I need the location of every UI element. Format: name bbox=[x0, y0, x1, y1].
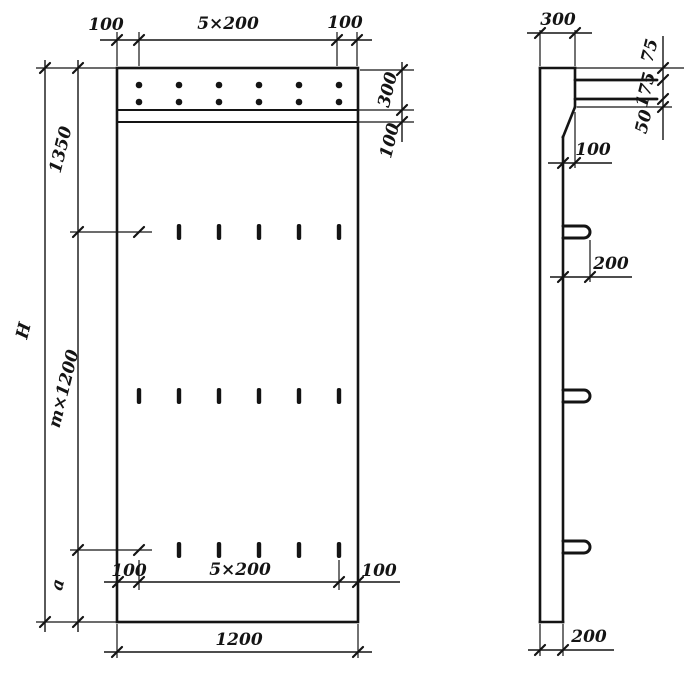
side-top-dimension: 300 bbox=[527, 10, 592, 66]
panel-outline bbox=[117, 68, 358, 622]
dim-side-offset-upper: 75 bbox=[638, 37, 663, 65]
front-right-dimensions: 300 100 bbox=[358, 62, 414, 160]
dim-side-offset-middle: 175 bbox=[632, 70, 660, 109]
front-lower-dimension: 100 5×200 100 bbox=[104, 560, 400, 590]
front-left-dimensions: H 1350 m×1200 a bbox=[12, 60, 152, 632]
panel-technical-drawing: 100 5×200 100 H 1350 m×1200 a bbox=[0, 0, 700, 700]
dim-lower-right-margin: 100 bbox=[361, 561, 397, 581]
dim-height-overall: H bbox=[12, 320, 36, 342]
side-view: 300 75 175 50 100 bbox=[527, 10, 684, 656]
dim-width-overall: 1200 bbox=[215, 630, 262, 650]
side-hooks bbox=[563, 226, 590, 553]
dim-band-height: 300 bbox=[374, 70, 402, 109]
side-bottom-dimension: 200 bbox=[528, 624, 614, 656]
hole-slots bbox=[137, 224, 341, 558]
drawing-sheet: 100 5×200 100 H 1350 m×1200 a bbox=[0, 0, 700, 700]
side-right-dimensions: 75 175 50 bbox=[575, 36, 684, 140]
dim-top-left-margin: 100 bbox=[88, 15, 124, 35]
dim-side-offset-lower: 50 bbox=[632, 108, 657, 136]
front-view: 100 5×200 100 H 1350 m×1200 a bbox=[12, 13, 414, 658]
dim-side-bend-offset: 100 bbox=[575, 140, 611, 160]
dim-lower-left-margin: 100 bbox=[111, 561, 147, 581]
anchor-dots bbox=[136, 82, 343, 106]
dim-lower-spacing: 5×200 bbox=[209, 560, 271, 580]
dim-height-upper: 1350 bbox=[46, 124, 77, 175]
front-width-dimension: 1200 bbox=[104, 624, 372, 658]
side-profile-outline bbox=[540, 68, 575, 622]
front-top-dimension: 100 5×200 100 bbox=[88, 13, 372, 66]
side-bend-dimension: 100 bbox=[548, 112, 612, 168]
dim-side-bottom-thickness: 200 bbox=[570, 627, 607, 647]
dim-top-right-margin: 100 bbox=[327, 13, 363, 33]
dim-top-spacing: 5×200 bbox=[197, 14, 259, 34]
dim-side-top-width: 300 bbox=[540, 10, 576, 30]
dim-strip-height: 100 bbox=[376, 121, 404, 160]
dim-side-hook-length: 200 bbox=[592, 254, 629, 274]
dim-height-lower: a bbox=[47, 577, 69, 593]
